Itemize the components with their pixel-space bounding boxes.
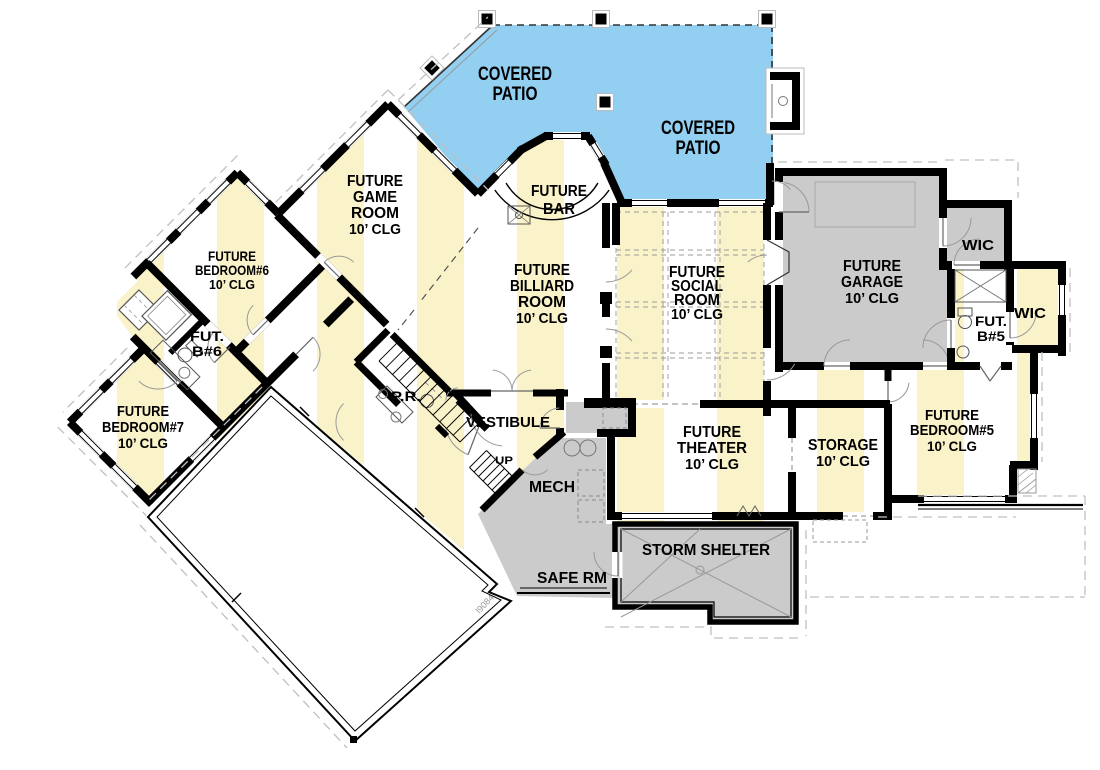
svg-text:MECH: MECH <box>529 479 575 496</box>
svg-text:10’ CLG: 10’ CLG <box>927 438 977 454</box>
svg-text:10’ CLG: 10’ CLG <box>671 306 723 323</box>
svg-text:10’ CLG: 10’ CLG <box>845 290 899 307</box>
svg-text:10’ CLG: 10’ CLG <box>209 277 255 292</box>
svg-text:P.R.: P.R. <box>391 388 421 404</box>
svg-text:FUTURE: FUTURE <box>683 424 741 441</box>
svg-text:FUTURE: FUTURE <box>531 183 587 200</box>
svg-text:THEATER: THEATER <box>677 440 747 457</box>
svg-text:B#6: B#6 <box>192 343 222 359</box>
svg-text:WIC: WIC <box>1014 305 1046 322</box>
svg-text:FUT.: FUT. <box>190 328 224 344</box>
svg-text:WIC: WIC <box>962 237 994 254</box>
svg-text:ROOM: ROOM <box>351 205 399 222</box>
svg-text:COVERED: COVERED <box>661 118 735 139</box>
svg-text:BEDROOM#5: BEDROOM#5 <box>910 422 994 439</box>
svg-text:FUTURE: FUTURE <box>347 173 403 190</box>
svg-text:FUTURE: FUTURE <box>117 403 169 420</box>
svg-text:B#5: B#5 <box>977 328 1005 344</box>
svg-text:FUTURE: FUTURE <box>514 262 570 279</box>
svg-text:BEDROOM#6: BEDROOM#6 <box>195 262 269 278</box>
svg-text:FUT.: FUT. <box>975 313 1007 329</box>
svg-text:PATIO: PATIO <box>493 84 538 105</box>
svg-text:BILLIARD: BILLIARD <box>510 278 574 295</box>
svg-text:BEDROOM#7: BEDROOM#7 <box>102 419 184 436</box>
svg-text:10’ CLG: 10’ CLG <box>816 453 870 470</box>
svg-text:GAME: GAME <box>353 189 397 206</box>
svg-text:10’ CLG: 10’ CLG <box>349 221 401 238</box>
svg-text:STORM SHELTER: STORM SHELTER <box>642 542 770 559</box>
svg-text:BAR: BAR <box>543 201 575 218</box>
svg-text:VESTIBULE: VESTIBULE <box>466 414 550 431</box>
svg-text:STORAGE: STORAGE <box>808 437 878 454</box>
svg-text:ROOM: ROOM <box>518 294 566 311</box>
svg-text:10’ CLG: 10’ CLG <box>685 456 739 473</box>
svg-text:SAFE RM: SAFE RM <box>537 570 607 587</box>
svg-text:UP: UP <box>495 455 513 467</box>
svg-text:PATIO: PATIO <box>676 138 721 159</box>
svg-text:10’ CLG: 10’ CLG <box>516 310 568 327</box>
svg-text:FUTURE: FUTURE <box>843 258 901 275</box>
svg-text:GARAGE: GARAGE <box>841 274 903 291</box>
svg-text:10’ CLG: 10’ CLG <box>118 435 168 451</box>
svg-text:COVERED: COVERED <box>478 64 552 85</box>
